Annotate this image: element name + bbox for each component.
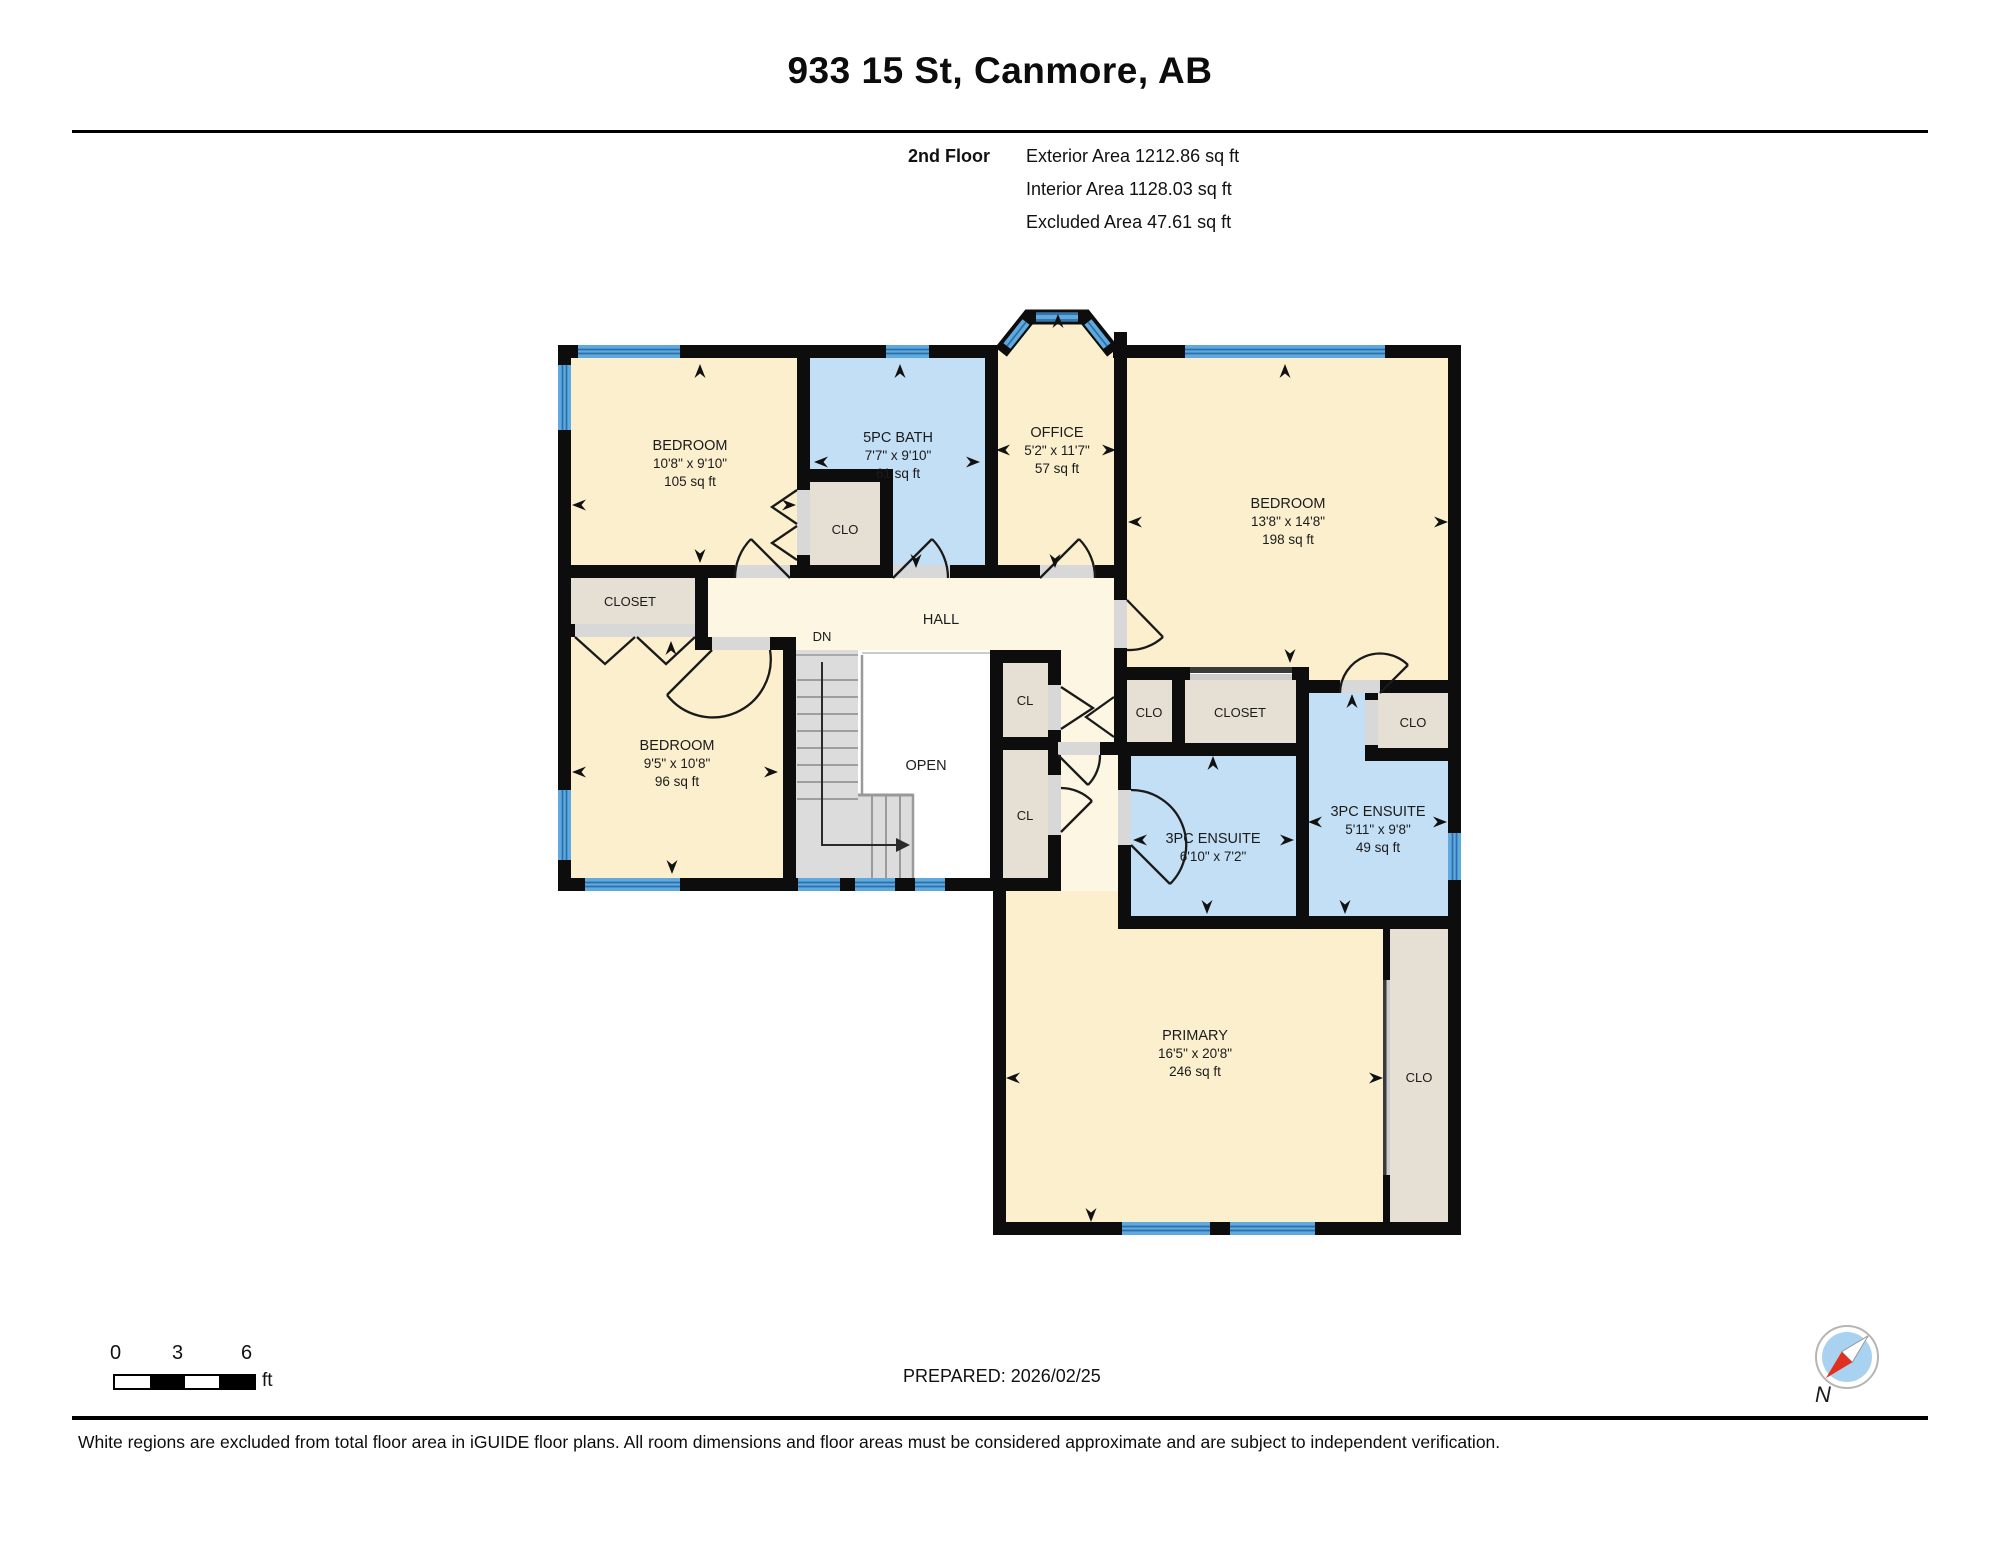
svg-text:10'8" x 9'10": 10'8" x 9'10" (653, 456, 727, 471)
label-cl-lower: CL (1017, 808, 1034, 823)
svg-text:61 sq ft: 61 sq ft (876, 466, 921, 481)
scale-unit: ft (262, 1370, 273, 1392)
svg-text:5'2" x 11'7": 5'2" x 11'7" (1024, 443, 1090, 458)
scale-tick-0: 0 (110, 1342, 121, 1365)
label-hall: HALL (923, 612, 959, 628)
label-closet-mid: CLOSET (1214, 705, 1266, 720)
svg-text:7'7" x 9'10": 7'7" x 9'10" (865, 448, 932, 463)
svg-text:5PC BATH: 5PC BATH (863, 430, 933, 446)
prepared-date: PREPARED: 2026/02/25 (903, 1366, 1101, 1387)
label-clo-right: CLO (1400, 715, 1427, 730)
disclaimer-text: White regions are excluded from total fl… (78, 1432, 1500, 1453)
svg-text:49 sq ft: 49 sq ft (1356, 840, 1401, 855)
svg-text:9'5" x 10'8": 9'5" x 10'8" (644, 756, 711, 771)
svg-text:BEDROOM: BEDROOM (1251, 496, 1326, 512)
svg-text:246 sq ft: 246 sq ft (1169, 1064, 1221, 1079)
svg-text:198 sq ft: 198 sq ft (1262, 532, 1314, 547)
svg-text:96 sq ft: 96 sq ft (655, 774, 700, 789)
interior-area: Interior Area 1128.03 sq ft (1026, 179, 1232, 200)
svg-text:16'5" x 20'8": 16'5" x 20'8" (1158, 1046, 1232, 1061)
svg-text:6'10" x 7'2": 6'10" x 7'2" (1180, 849, 1247, 864)
scale-tick-6: 6 (241, 1342, 252, 1365)
svg-text:13'8" x 14'8": 13'8" x 14'8" (1251, 514, 1325, 529)
svg-text:OFFICE: OFFICE (1030, 425, 1083, 441)
svg-text:57 sq ft: 57 sq ft (1035, 461, 1080, 476)
label-open: OPEN (905, 758, 946, 774)
label-clo-primary: CLO (1406, 1070, 1433, 1085)
label-closet-left: CLOSET (604, 594, 656, 609)
compass-icon: N (1810, 1320, 1888, 1408)
label-cl-upper: CL (1017, 693, 1034, 708)
floor-plan: BEDROOM 10'8" x 9'10" 105 sq ft 5PC BATH… (540, 270, 1480, 1260)
footer-divider (72, 1416, 1928, 1420)
svg-text:3PC ENSUITE: 3PC ENSUITE (1165, 831, 1260, 847)
svg-text:105 sq ft: 105 sq ft (664, 474, 716, 489)
svg-text:BEDROOM: BEDROOM (653, 438, 728, 454)
scale-tick-3: 3 (172, 1342, 183, 1365)
scale-bar (113, 1374, 256, 1390)
label-clo-bath: CLO (832, 522, 859, 537)
label-dn: DN (813, 629, 832, 644)
page-title: 933 15 St, Canmore, AB (0, 50, 2000, 92)
svg-text:BEDROOM: BEDROOM (640, 738, 715, 754)
label-clo-mid: CLO (1136, 705, 1163, 720)
header-divider (72, 130, 1928, 133)
exterior-area: Exterior Area 1212.86 sq ft (1026, 146, 1239, 167)
svg-text:3PC ENSUITE: 3PC ENSUITE (1330, 804, 1425, 820)
svg-text:PRIMARY: PRIMARY (1162, 1028, 1228, 1044)
compass-north-label: N (1815, 1382, 1831, 1407)
excluded-area: Excluded Area 47.61 sq ft (1026, 212, 1231, 233)
svg-text:5'11" x 9'8": 5'11" x 9'8" (1345, 822, 1411, 837)
floor-label: 2nd Floor (908, 146, 990, 167)
